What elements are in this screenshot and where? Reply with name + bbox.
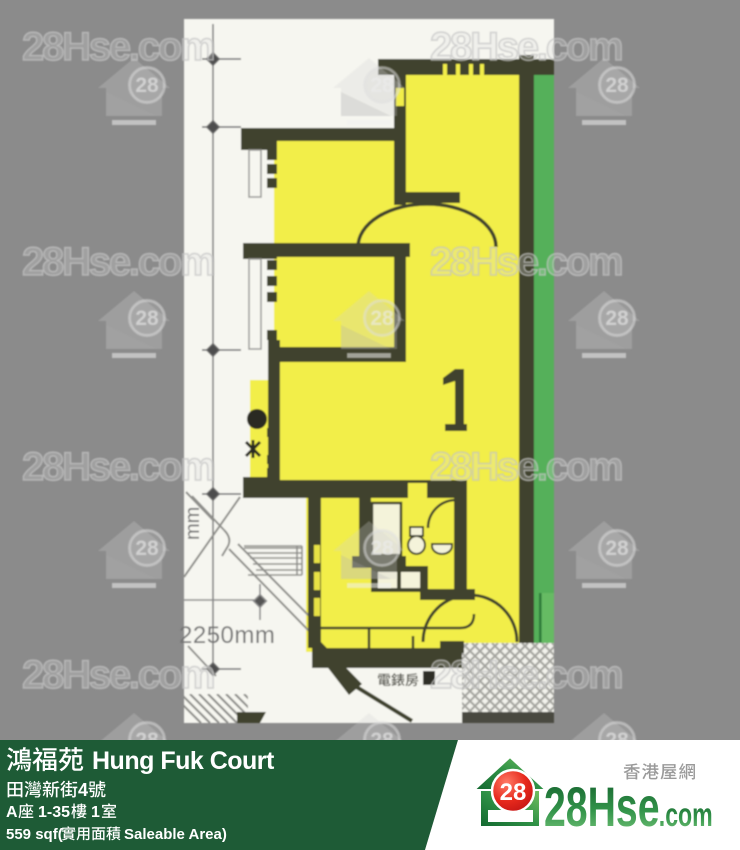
svg-text:28: 28 xyxy=(135,74,159,97)
svg-text:28: 28 xyxy=(135,307,159,330)
svg-text:Saleable Area): Saleable Area) xyxy=(124,826,227,843)
svg-text:28: 28 xyxy=(370,307,394,330)
svg-text:28Hse.com: 28Hse.com xyxy=(22,653,214,697)
svg-text:.com: .com xyxy=(659,797,713,834)
svg-text:1: 1 xyxy=(91,804,100,821)
svg-text:28Hse.com: 28Hse.com xyxy=(430,25,622,69)
svg-text:A: A xyxy=(6,804,18,821)
svg-text:28: 28 xyxy=(605,537,629,560)
svg-text:28Hse.com: 28Hse.com xyxy=(430,653,622,697)
svg-text:28: 28 xyxy=(605,74,629,97)
svg-text:4: 4 xyxy=(78,780,88,800)
svg-text:Hung Fuk Court: Hung Fuk Court xyxy=(92,747,275,775)
svg-text:28Hse: 28Hse xyxy=(544,776,660,839)
svg-text:28Hse.com: 28Hse.com xyxy=(22,445,214,489)
svg-text:28: 28 xyxy=(605,307,629,330)
svg-text:28Hse.com: 28Hse.com xyxy=(22,240,214,284)
svg-text:28: 28 xyxy=(370,537,394,560)
svg-text:28: 28 xyxy=(370,74,394,97)
svg-text:28Hse.com: 28Hse.com xyxy=(430,445,622,489)
svg-text:559 sqf(: 559 sqf( xyxy=(6,826,63,843)
svg-text:2250mm: 2250mm xyxy=(179,622,275,649)
svg-text:28Hse.com: 28Hse.com xyxy=(22,25,214,69)
svg-text:1-35: 1-35 xyxy=(38,804,70,821)
svg-text:28Hse.com: 28Hse.com xyxy=(430,240,622,284)
svg-text:mm: mm xyxy=(182,507,204,540)
svg-text:28: 28 xyxy=(500,779,527,806)
svg-text:28: 28 xyxy=(135,537,159,560)
